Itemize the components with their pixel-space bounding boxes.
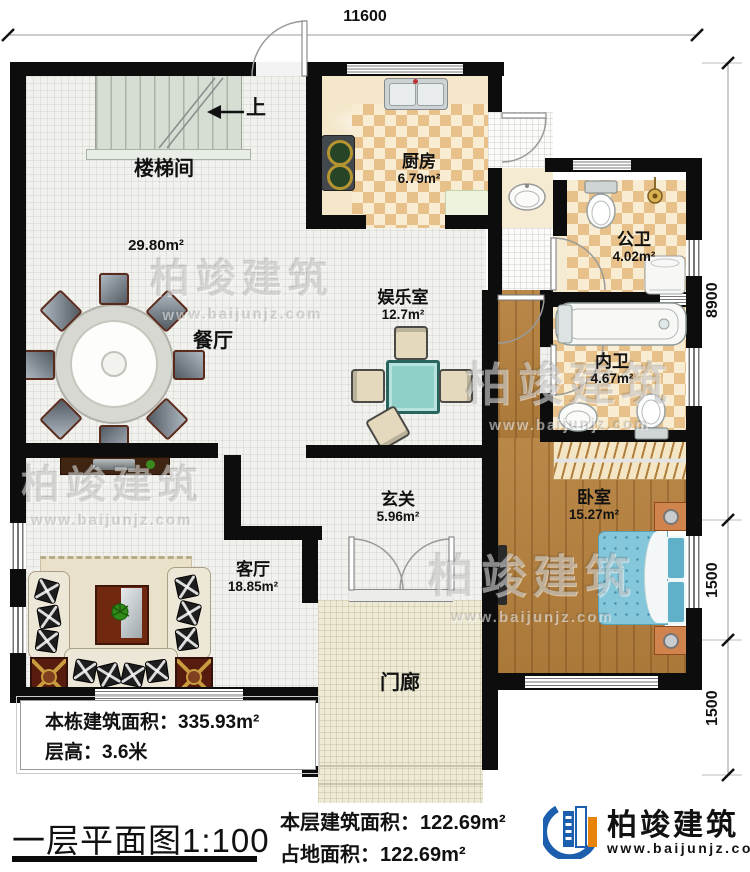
nightstand-knob	[663, 633, 679, 649]
wall-kitchen-bottom-b	[445, 215, 502, 229]
public-bath-threshold	[553, 236, 567, 292]
wardrobe	[553, 441, 688, 480]
bed-pillow	[666, 580, 686, 624]
room-name: 餐厅	[193, 330, 233, 352]
end-table-knob	[41, 669, 57, 685]
wall-top-left	[10, 62, 256, 76]
plant-icon	[146, 460, 155, 469]
room-name: 厨房	[398, 152, 441, 171]
wall-corridor-left	[482, 290, 498, 770]
brand-logo-icon	[543, 797, 601, 859]
room-area: 4.02m²	[613, 249, 656, 264]
faucet-icon	[413, 79, 418, 84]
entry-door-sill	[349, 589, 453, 602]
dim-right-main: 8900	[704, 282, 722, 318]
floor-plan-canvas: 楼梯间 29.80m² 餐厅 厨房6.79m² 娱乐室12.7m² 公卫4.02…	[0, 0, 750, 872]
nightstand	[654, 626, 688, 655]
room-label-stairwell: 楼梯间	[134, 158, 194, 180]
dim-top: 11600	[330, 8, 400, 26]
room-name: 娱乐室	[378, 288, 429, 307]
room-area: 5.96m²	[377, 509, 420, 524]
sofa-cushion	[36, 604, 61, 629]
coffee-table-glass	[121, 588, 142, 638]
room-label-porch: 门廊	[380, 672, 420, 694]
info-line-building-area: 本栋建筑面积：335.93m²	[45, 707, 259, 734]
dining-chair	[23, 350, 55, 380]
wall-dining-living-divider	[10, 443, 218, 458]
room-name: 玄关	[377, 490, 420, 509]
dining-chair	[173, 350, 205, 380]
sofa-cushion	[175, 627, 200, 652]
game-chair	[394, 326, 428, 360]
dining-table-hub	[101, 351, 127, 377]
living-west-window-1	[10, 523, 26, 569]
info-line-floor-height: 层高：3.6米	[45, 737, 147, 764]
porch-step-line	[318, 765, 483, 767]
private-bath-east-window	[686, 348, 702, 406]
room-area: 4.67m²	[591, 371, 634, 386]
room-label-private-bath: 内卫4.67m²	[591, 352, 634, 386]
sink-basin-left	[389, 83, 416, 106]
stair-up-label: 上	[246, 97, 266, 119]
nightstand	[654, 502, 688, 531]
sofa-cushion	[120, 662, 146, 688]
top-door-threshold	[256, 62, 306, 76]
room-area: 6.79m²	[398, 171, 441, 186]
room-label-living: 客厅18.85m²	[228, 560, 278, 594]
bedroom-east-window	[686, 536, 702, 608]
brand-url: www.baijunjz.com	[607, 840, 750, 856]
wall-private-bath-left-a	[540, 290, 553, 347]
wall-private-bath-bottom	[540, 430, 702, 442]
up-text: 上	[246, 97, 266, 119]
kitchen-door-threshold	[488, 112, 502, 168]
wall-foyer-left	[302, 527, 318, 603]
bedroom-south-window	[525, 676, 658, 688]
bath-divider-window	[660, 294, 686, 305]
brand-name: 柏竣建筑	[607, 800, 739, 844]
room-label-public-bath: 公卫4.02m²	[613, 230, 656, 264]
wall-right	[686, 158, 702, 690]
private-bath-threshold	[540, 347, 553, 393]
wall-divider-stub-v	[224, 455, 241, 535]
room-label-dining: 餐厅	[193, 330, 233, 352]
sofa-cushion	[35, 629, 60, 654]
basin-niche-floor	[502, 168, 553, 228]
title-underline	[12, 856, 257, 862]
plan-title: 一层平面图1:100	[12, 814, 270, 862]
room-name: 客厅	[228, 560, 278, 579]
wall-foyer-top	[306, 445, 482, 458]
room-area: 29.80m²	[128, 238, 184, 255]
sofa-cushion	[174, 574, 200, 600]
room-name: 卧室	[569, 488, 619, 507]
room-name: 楼梯间	[134, 158, 194, 180]
bedroom-tv-icon	[498, 545, 507, 605]
room-label-entertainment: 娱乐室12.7m²	[378, 288, 429, 322]
wall-kitchen-bottom-a	[306, 215, 366, 229]
footer-floor-area: 本层建筑面积：122.69m²	[280, 806, 506, 835]
dim-right-mid: 1500	[704, 562, 722, 598]
burner-icon	[327, 140, 353, 166]
public-bath-east-window	[686, 240, 702, 276]
room-name: 公卫	[613, 230, 656, 249]
dining-chair	[99, 273, 129, 305]
room-label-foyer: 玄关5.96m²	[377, 490, 420, 524]
end-table-knob	[186, 669, 202, 685]
bed-pillow	[666, 536, 686, 580]
room-label-kitchen: 厨房6.79m²	[398, 152, 441, 186]
public-bath-window	[573, 160, 631, 170]
wall-kitchen-right-lower	[488, 168, 502, 300]
sink-basin-right	[417, 83, 444, 106]
info-box: 本栋建筑面积：335.93m² 层高：3.6米	[20, 700, 316, 770]
stair-treads	[95, 76, 242, 150]
game-chair	[351, 369, 385, 403]
corridor-floor	[498, 290, 540, 438]
room-label-open-area: 29.80m²	[128, 238, 184, 255]
room-name: 门廊	[380, 672, 420, 694]
room-area: 12.7m²	[378, 307, 429, 322]
kitchen-window	[347, 64, 463, 74]
game-chair	[439, 369, 473, 403]
porch-floor	[318, 600, 483, 803]
room-area: 15.27m²	[569, 507, 619, 522]
room-label-bedroom: 卧室15.27m²	[569, 488, 619, 522]
living-west-window-2	[10, 607, 26, 653]
wall-kitchen-left	[306, 76, 322, 228]
tv-icon	[93, 459, 135, 470]
burner-icon	[327, 164, 353, 190]
footer-ground-area: 占地面积：122.69m²	[280, 838, 466, 867]
nightstand-knob	[663, 509, 679, 525]
porch-step-line	[318, 783, 483, 785]
wall-public-bath-left	[553, 180, 567, 236]
dim-right-bottom: 1500	[704, 690, 722, 726]
sofa-cushion	[72, 658, 97, 683]
room-area: 18.85m²	[228, 579, 278, 594]
bed-sheet-fold	[644, 531, 667, 623]
wall-kitchen-right-upper	[488, 62, 502, 112]
sofa-cushion	[145, 659, 170, 684]
room-name: 内卫	[591, 352, 634, 371]
